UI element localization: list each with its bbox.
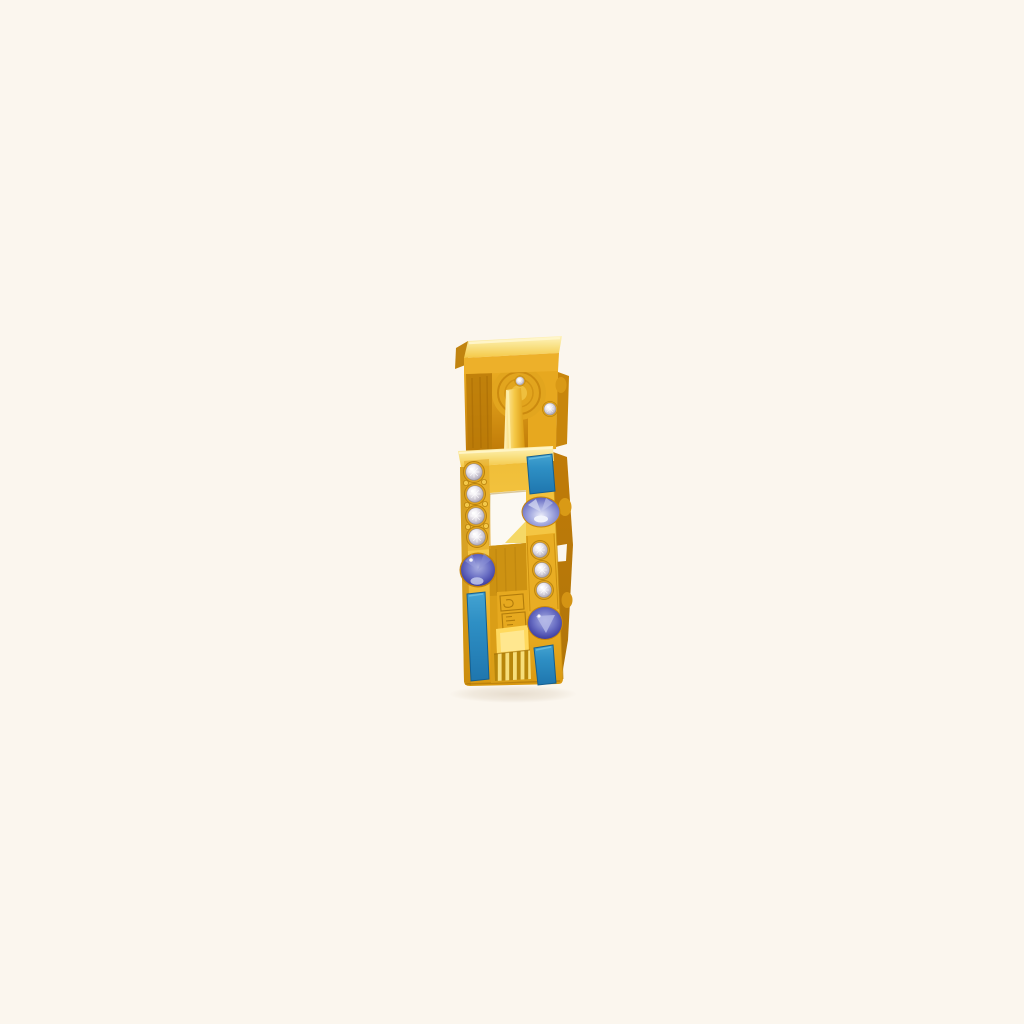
pave-diamond-right-1 [531, 541, 550, 560]
drop-shadow [449, 685, 577, 703]
sapphire-left-glint [471, 577, 484, 585]
hinge-back-bump [556, 377, 567, 393]
sapphire-right-glint [534, 516, 548, 523]
sapphire-bottom-right [527, 606, 563, 640]
side-prong-bump-1 [559, 498, 572, 516]
pave-diamond-left-1 [464, 462, 485, 483]
hoop-body [458, 446, 563, 686]
pave-diamond-left-2 [465, 484, 486, 505]
enamel-left-stripe [467, 592, 489, 681]
pave-diamond-right-3 [535, 581, 554, 600]
enamel-bottom-stripe [534, 645, 556, 685]
inner-bright-core [500, 630, 525, 652]
ribbed-texture [494, 650, 531, 681]
enamel-bottom-fill [534, 645, 556, 685]
product-photo [0, 0, 1024, 1024]
side-prong-bump-2 [562, 592, 573, 608]
hoop-window [489, 490, 526, 546]
pave-diamond-right-2 [533, 561, 552, 580]
sapphire-left-sparkle [469, 558, 473, 562]
hinge-tiny-diamond [515, 376, 526, 387]
hinge-diamond [542, 401, 557, 416]
enamel-left-fill [467, 592, 489, 681]
hinge-block [455, 336, 569, 451]
enamel-top-fill [527, 454, 555, 494]
product-photo-stage [0, 0, 1024, 1024]
pave-strip-right [526, 533, 559, 612]
pave-diamond-left-3 [466, 506, 487, 527]
earring [455, 336, 573, 686]
sapphire-bottom-sparkle [537, 614, 540, 617]
enamel-top-right [527, 454, 555, 494]
sapphire-top-right [522, 497, 561, 528]
sapphire-left [460, 553, 497, 588]
pave-diamond-left-4 [467, 527, 488, 548]
